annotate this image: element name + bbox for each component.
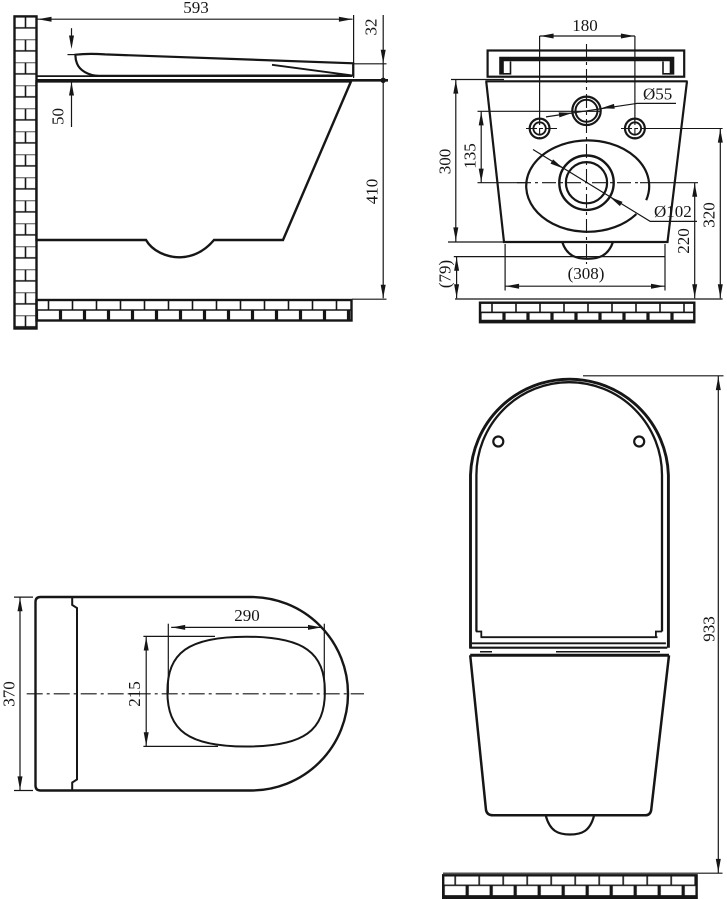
svg-text:(308): (308) — [568, 264, 605, 283]
svg-text:215: 215 — [125, 681, 144, 707]
svg-text:320: 320 — [700, 202, 719, 228]
svg-text:32: 32 — [362, 19, 381, 36]
svg-text:933: 933 — [700, 616, 719, 642]
svg-text:220: 220 — [674, 228, 693, 254]
svg-text:Ø102: Ø102 — [654, 202, 692, 221]
svg-text:180: 180 — [572, 16, 598, 35]
svg-text:410: 410 — [363, 179, 382, 205]
svg-text:Ø55: Ø55 — [643, 85, 672, 104]
svg-text:593: 593 — [183, 0, 209, 17]
svg-text:135: 135 — [461, 143, 480, 169]
svg-text:(79): (79) — [436, 260, 455, 288]
svg-text:290: 290 — [234, 606, 260, 625]
svg-text:370: 370 — [0, 681, 19, 707]
svg-text:50: 50 — [49, 108, 68, 125]
svg-text:300: 300 — [436, 149, 455, 175]
